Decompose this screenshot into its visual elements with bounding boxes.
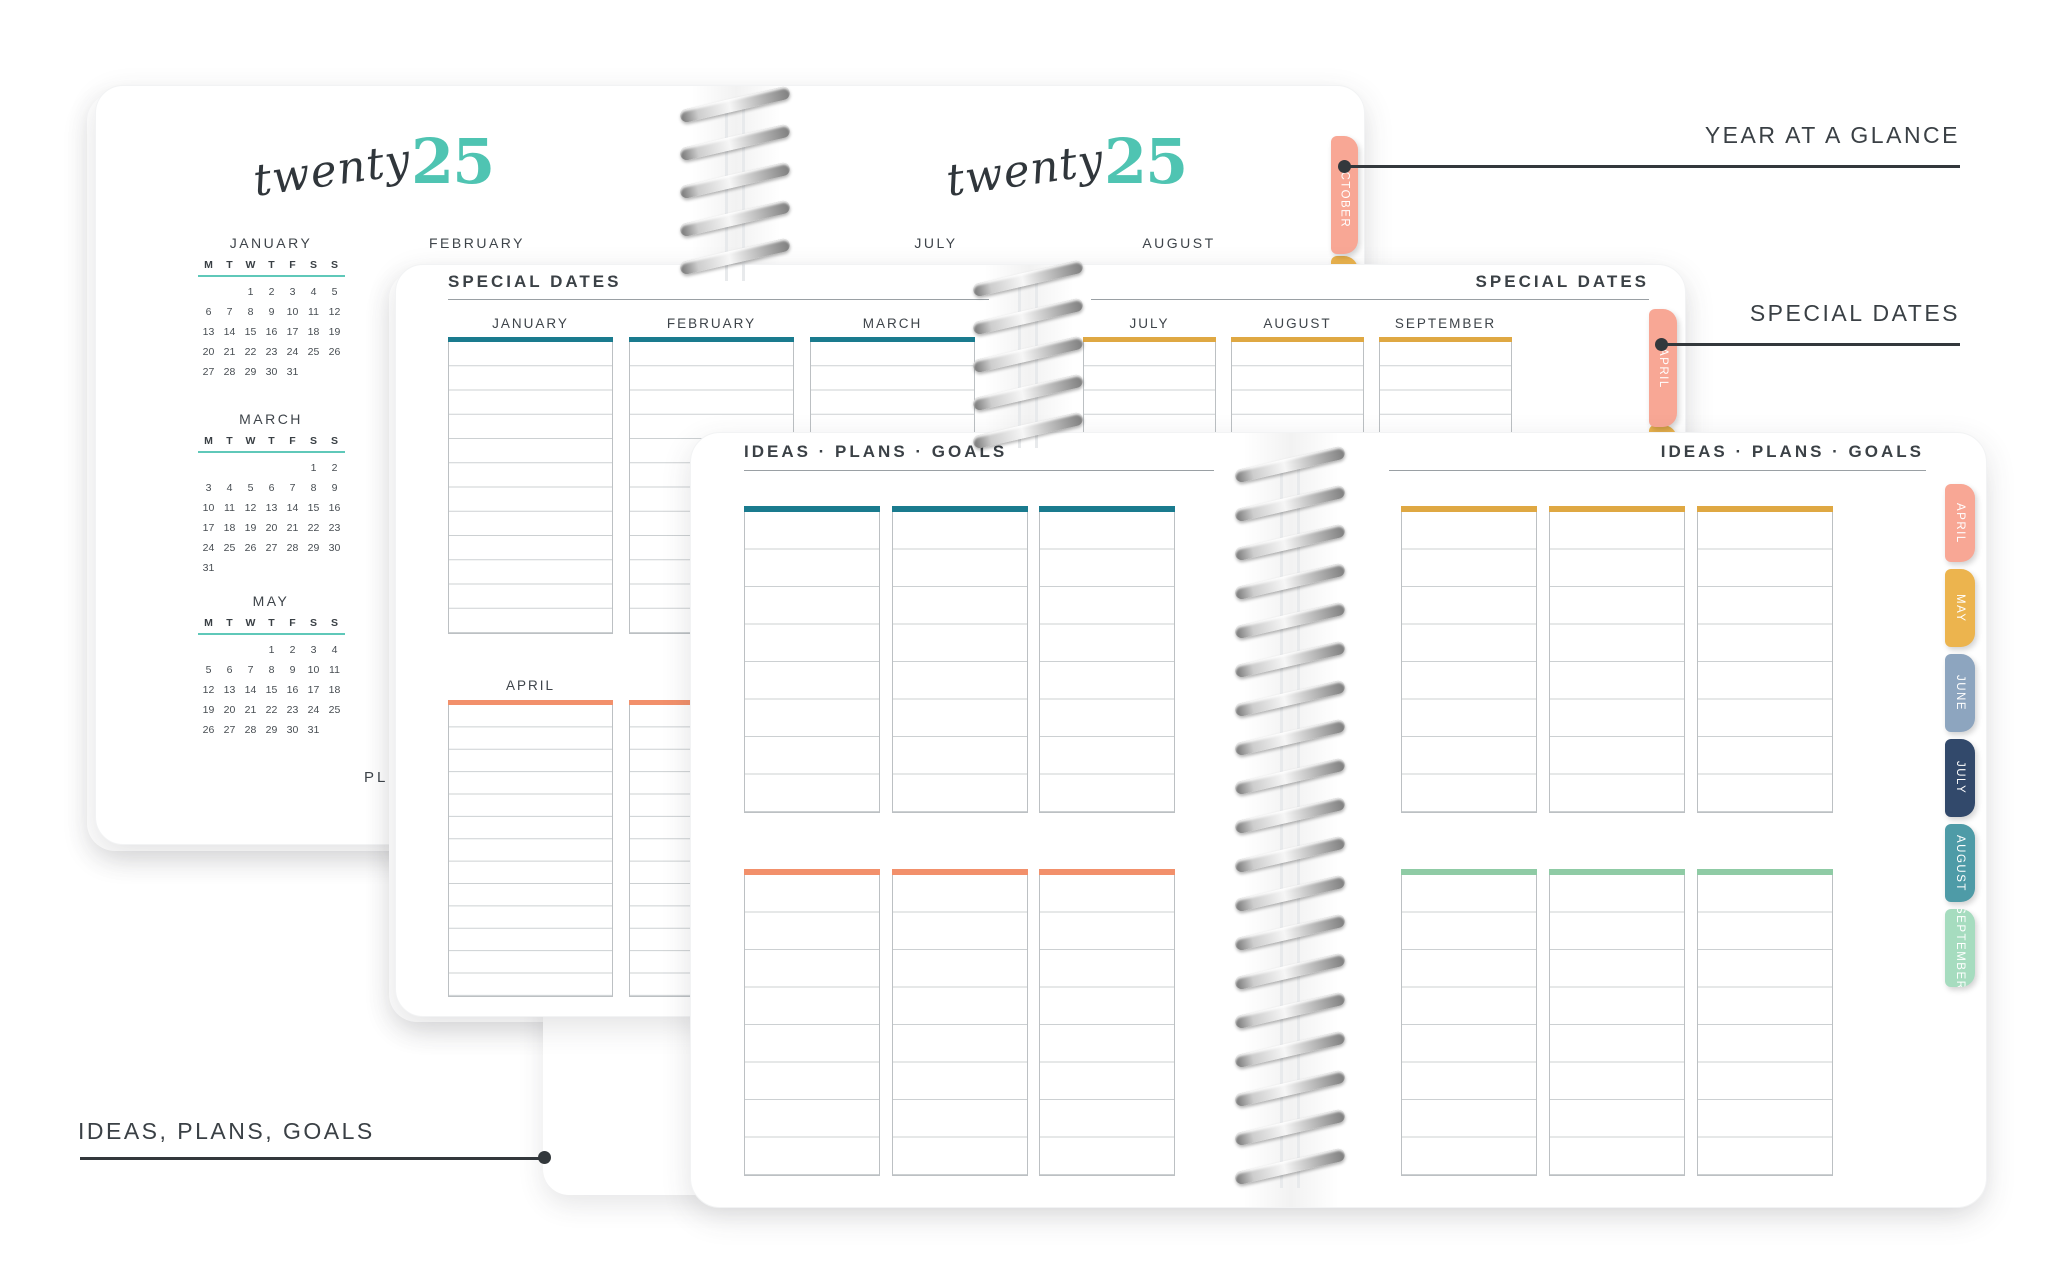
calendar-day-header: T bbox=[219, 435, 240, 451]
calendar-date-cell: 1 bbox=[240, 282, 261, 302]
calendar-date-cell: 5 bbox=[324, 282, 345, 302]
calendar-date-cell: 13 bbox=[198, 322, 219, 342]
logo-twenty25-right: twenty 25 bbox=[916, 131, 1216, 196]
calendar-date-cell: 29 bbox=[303, 538, 324, 558]
calendar-date-cell: 9 bbox=[282, 660, 303, 680]
calendar-date-cell bbox=[240, 640, 261, 660]
mini-calendar-label-january: JANUARY bbox=[181, 235, 361, 251]
column-label-july: JULY bbox=[1083, 316, 1216, 331]
calendar-date-cell bbox=[324, 362, 345, 382]
calendar-date-cell: 14 bbox=[219, 322, 240, 342]
calendar-date-cell: 31 bbox=[198, 558, 219, 578]
lined-box bbox=[1039, 875, 1175, 1176]
calendar-date-cell: 13 bbox=[219, 680, 240, 700]
calendar-date-cell: 20 bbox=[261, 518, 282, 538]
calendar-date-cell: 31 bbox=[282, 362, 303, 382]
calendar-date-cell: 8 bbox=[303, 478, 324, 498]
lined-box bbox=[1401, 512, 1537, 813]
lined-box bbox=[1549, 875, 1685, 1176]
calendar-date-cell: 23 bbox=[324, 518, 345, 538]
calendar-date-cell bbox=[198, 458, 219, 478]
calendar-day-header: M bbox=[198, 259, 219, 275]
calendar-date-cell: 19 bbox=[240, 518, 261, 538]
mini-calendar-may: MTWTFSS123456789101112131415161718192021… bbox=[198, 617, 345, 740]
calendar-date-cell bbox=[261, 458, 282, 478]
mini-calendar-january: MTWTFSS123456789101112131415161718192021… bbox=[198, 259, 345, 382]
header-rule-left bbox=[744, 470, 1214, 471]
logo-script-text: twenty bbox=[943, 134, 1107, 207]
calendar-date-cell: 14 bbox=[282, 498, 303, 518]
lined-box bbox=[1697, 875, 1833, 1176]
calendar-date-cell: 22 bbox=[261, 700, 282, 720]
ideas-plans-goals-header-right: IDEAS · PLANS · GOALS bbox=[1661, 442, 1924, 462]
header-rule-right bbox=[1389, 470, 1926, 471]
calendar-date-cell: 10 bbox=[198, 498, 219, 518]
callout-special-dates: SPECIAL DATES bbox=[1400, 300, 1960, 327]
calendar-date-cell: 11 bbox=[303, 302, 324, 322]
calendar-date-cell: 18 bbox=[219, 518, 240, 538]
calendar-date-cell: 12 bbox=[240, 498, 261, 518]
calendar-date-cell: 7 bbox=[282, 478, 303, 498]
calendar-date-cell: 5 bbox=[240, 478, 261, 498]
calendar-date-cell: 8 bbox=[240, 302, 261, 322]
calendar-date-cell bbox=[303, 362, 324, 382]
calendar-date-cell: 18 bbox=[324, 680, 345, 700]
column-label-august: AUGUST bbox=[1231, 316, 1364, 331]
calendar-date-cell bbox=[282, 558, 303, 578]
calendar-date-cell bbox=[219, 558, 240, 578]
calendar-teal-rule bbox=[198, 451, 345, 453]
tab-august: AUGUST bbox=[1945, 824, 1975, 902]
calendar-date-cell: 28 bbox=[219, 362, 240, 382]
calendar-day-header: T bbox=[261, 617, 282, 633]
calendar-date-cell: 4 bbox=[324, 640, 345, 660]
tab-april: APRIL bbox=[1945, 484, 1975, 562]
calendar-date-cell: 6 bbox=[198, 302, 219, 322]
calendar-day-header: F bbox=[282, 617, 303, 633]
calendar-date-cell: 27 bbox=[219, 720, 240, 740]
calendar-day-header: M bbox=[198, 617, 219, 633]
logo-twenty25-left: twenty 25 bbox=[223, 131, 523, 196]
logo-year-number: 25 bbox=[1104, 131, 1186, 193]
tab-april-label: APRIL bbox=[1657, 348, 1669, 389]
calendar-date-cell: 16 bbox=[324, 498, 345, 518]
calendar-date-cell: 27 bbox=[261, 538, 282, 558]
calendar-date-cell bbox=[198, 282, 219, 302]
calendar-date-cell: 9 bbox=[261, 302, 282, 322]
month-label-july: JULY bbox=[846, 235, 1026, 251]
column-label-march: MARCH bbox=[810, 316, 975, 331]
callout-line-special-dates bbox=[1661, 343, 1960, 346]
calendar-date-cell: 11 bbox=[219, 498, 240, 518]
calendar-date-cell bbox=[282, 458, 303, 478]
calendar-day-header: W bbox=[240, 435, 261, 451]
calendar-date-cell: 23 bbox=[261, 342, 282, 362]
calendar-day-header: W bbox=[240, 617, 261, 633]
callout-line-ideas-plans-goals bbox=[80, 1157, 545, 1160]
calendar-date-cell: 15 bbox=[303, 498, 324, 518]
calendar-day-header: F bbox=[282, 259, 303, 275]
special-dates-header-right: SPECIAL DATES bbox=[1476, 272, 1649, 292]
tab-label-july: JULY bbox=[1954, 761, 1966, 794]
calendar-date-cell bbox=[261, 558, 282, 578]
calendar-date-cell: 30 bbox=[261, 362, 282, 382]
calendar-day-header: T bbox=[261, 259, 282, 275]
callout-ideas-plans-goals: IDEAS, PLANS, GOALS bbox=[78, 1118, 375, 1145]
calendar-date-cell: 21 bbox=[219, 342, 240, 362]
tab-october: OCTOBER bbox=[1331, 136, 1358, 254]
calendar-date-cell: 8 bbox=[261, 660, 282, 680]
calendar-date-cell: 27 bbox=[198, 362, 219, 382]
tab-september: SEPTEMBER bbox=[1945, 909, 1975, 987]
lined-box bbox=[1697, 512, 1833, 813]
calendar-date-cell: 25 bbox=[324, 700, 345, 720]
tab-label-june: JUNE bbox=[1954, 675, 1966, 711]
calendar-date-cell bbox=[219, 640, 240, 660]
calendar-date-cell: 22 bbox=[240, 342, 261, 362]
calendar-day-header: T bbox=[219, 617, 240, 633]
lined-box bbox=[892, 512, 1028, 813]
calendar-date-cell: 28 bbox=[282, 538, 303, 558]
ideas-plans-goals-spread: IDEAS · PLANS · GOALS IDEAS · PLANS · GO… bbox=[690, 432, 1987, 1208]
callout-dot-ideas-plans-goals bbox=[538, 1151, 551, 1164]
calendar-date-cell: 24 bbox=[198, 538, 219, 558]
calendar-day-header: S bbox=[324, 259, 345, 275]
calendar-date-cell: 18 bbox=[303, 322, 324, 342]
calendar-date-cell: 17 bbox=[303, 680, 324, 700]
header-rule-left bbox=[448, 299, 989, 300]
calendar-date-cell: 13 bbox=[261, 498, 282, 518]
calendar-date-cell: 22 bbox=[303, 518, 324, 538]
calendar-date-cell: 17 bbox=[282, 322, 303, 342]
calendar-date-cell: 16 bbox=[282, 680, 303, 700]
tab-june: JUNE bbox=[1945, 654, 1975, 732]
column-label-january: JANUARY bbox=[448, 316, 613, 331]
calendar-teal-rule bbox=[198, 275, 345, 277]
calendar-date-cell: 30 bbox=[324, 538, 345, 558]
calendar-date-cell: 4 bbox=[219, 478, 240, 498]
calendar-day-header: S bbox=[324, 435, 345, 451]
calendar-day-header: T bbox=[219, 259, 240, 275]
calendar-date-cell: 19 bbox=[198, 700, 219, 720]
calendar-date-cell: 2 bbox=[261, 282, 282, 302]
calendar-date-cell: 9 bbox=[324, 478, 345, 498]
calendar-date-cell: 23 bbox=[282, 700, 303, 720]
column-label-february: FEBRUARY bbox=[629, 316, 794, 331]
calendar-day-header: S bbox=[324, 617, 345, 633]
calendar-date-cell: 26 bbox=[240, 538, 261, 558]
lined-box bbox=[744, 512, 880, 813]
calendar-date-cell: 7 bbox=[240, 660, 261, 680]
calendar-date-cell: 24 bbox=[282, 342, 303, 362]
tab-may: MAY bbox=[1945, 569, 1975, 647]
callout-line-year-at-a-glance bbox=[1344, 165, 1960, 168]
tab-label-september: SEPTEMBER bbox=[1954, 909, 1966, 987]
calendar-day-header: S bbox=[303, 617, 324, 633]
special-dates-header-left: SPECIAL DATES bbox=[448, 272, 621, 292]
lined-box bbox=[448, 705, 613, 997]
calendar-date-cell: 29 bbox=[240, 362, 261, 382]
calendar-day-header: F bbox=[282, 435, 303, 451]
lined-box bbox=[892, 875, 1028, 1176]
lined-box bbox=[1039, 512, 1175, 813]
planner-product-image: twenty 25 twenty 25 FEBRUARYJULYAUGUSTJA… bbox=[0, 0, 2072, 1269]
calendar-date-cell: 12 bbox=[324, 302, 345, 322]
calendar-date-cell: 11 bbox=[324, 660, 345, 680]
calendar-date-cell: 15 bbox=[261, 680, 282, 700]
calendar-date-cell: 14 bbox=[240, 680, 261, 700]
month-label-february: FEBRUARY bbox=[387, 235, 567, 251]
calendar-date-cell: 7 bbox=[219, 302, 240, 322]
column-label-april: APRIL bbox=[448, 678, 613, 693]
calendar-date-cell bbox=[240, 558, 261, 578]
calendar-date-cell: 19 bbox=[324, 322, 345, 342]
callout-year-at-a-glance: YEAR AT A GLANCE bbox=[1400, 122, 1960, 149]
calendar-date-cell bbox=[240, 458, 261, 478]
spiral-paper-edge bbox=[1280, 462, 1283, 1188]
calendar-date-cell bbox=[303, 558, 324, 578]
lined-box bbox=[1401, 875, 1537, 1176]
calendar-teal-rule bbox=[198, 633, 345, 635]
calendar-date-cell: 20 bbox=[198, 342, 219, 362]
calendar-day-header: M bbox=[198, 435, 219, 451]
calendar-day-header: T bbox=[261, 435, 282, 451]
ideas-plans-goals-header-left: IDEAS · PLANS · GOALS bbox=[744, 442, 1007, 462]
calendar-date-cell: 3 bbox=[303, 640, 324, 660]
calendar-date-cell: 10 bbox=[282, 302, 303, 322]
calendar-date-cell: 26 bbox=[324, 342, 345, 362]
calendar-day-header: W bbox=[240, 259, 261, 275]
tab-label-august: AUGUST bbox=[1954, 835, 1966, 892]
calendar-date-cell: 2 bbox=[324, 458, 345, 478]
lined-box bbox=[1549, 512, 1685, 813]
callout-dot-special-dates bbox=[1655, 338, 1668, 351]
calendar-date-cell: 30 bbox=[282, 720, 303, 740]
calendar-date-cell bbox=[219, 282, 240, 302]
tab-label-may: MAY bbox=[1954, 594, 1966, 623]
calendar-date-cell: 25 bbox=[219, 538, 240, 558]
calendar-date-cell bbox=[198, 640, 219, 660]
calendar-day-header: S bbox=[303, 259, 324, 275]
calendar-date-cell: 6 bbox=[261, 478, 282, 498]
month-label-august: AUGUST bbox=[1089, 235, 1269, 251]
calendar-date-cell: 16 bbox=[261, 322, 282, 342]
calendar-date-cell: 15 bbox=[240, 322, 261, 342]
logo-script-text: twenty bbox=[250, 134, 414, 207]
calendar-date-cell bbox=[219, 458, 240, 478]
calendar-date-cell: 21 bbox=[282, 518, 303, 538]
calendar-date-cell: 31 bbox=[303, 720, 324, 740]
lined-box bbox=[744, 875, 880, 1176]
calendar-date-cell: 4 bbox=[303, 282, 324, 302]
calendar-date-cell: 26 bbox=[198, 720, 219, 740]
calendar-date-cell: 10 bbox=[303, 660, 324, 680]
callout-dot-year-at-a-glance bbox=[1338, 160, 1351, 173]
calendar-date-cell bbox=[324, 558, 345, 578]
calendar-date-cell: 3 bbox=[198, 478, 219, 498]
mini-calendar-march: MTWTFSS123456789101112131415161718192021… bbox=[198, 435, 345, 578]
calendar-date-cell: 1 bbox=[303, 458, 324, 478]
calendar-date-cell: 12 bbox=[198, 680, 219, 700]
logo-year-number: 25 bbox=[411, 131, 493, 193]
calendar-date-cell: 5 bbox=[198, 660, 219, 680]
lined-box bbox=[448, 342, 613, 634]
tab-label-april: APRIL bbox=[1954, 503, 1966, 544]
calendar-date-cell: 3 bbox=[282, 282, 303, 302]
mini-calendar-label-may: MAY bbox=[181, 593, 361, 609]
calendar-day-header: S bbox=[303, 435, 324, 451]
calendar-date-cell: 20 bbox=[219, 700, 240, 720]
calendar-date-cell: 6 bbox=[219, 660, 240, 680]
calendar-date-cell bbox=[324, 720, 345, 740]
calendar-date-cell: 28 bbox=[240, 720, 261, 740]
calendar-date-cell: 29 bbox=[261, 720, 282, 740]
calendar-date-cell: 24 bbox=[303, 700, 324, 720]
calendar-date-cell: 17 bbox=[198, 518, 219, 538]
tab-july: JULY bbox=[1945, 739, 1975, 817]
mini-calendar-label-march: MARCH bbox=[181, 411, 361, 427]
calendar-date-cell: 2 bbox=[282, 640, 303, 660]
calendar-date-cell: 25 bbox=[303, 342, 324, 362]
calendar-date-cell: 21 bbox=[240, 700, 261, 720]
calendar-date-cell: 1 bbox=[261, 640, 282, 660]
